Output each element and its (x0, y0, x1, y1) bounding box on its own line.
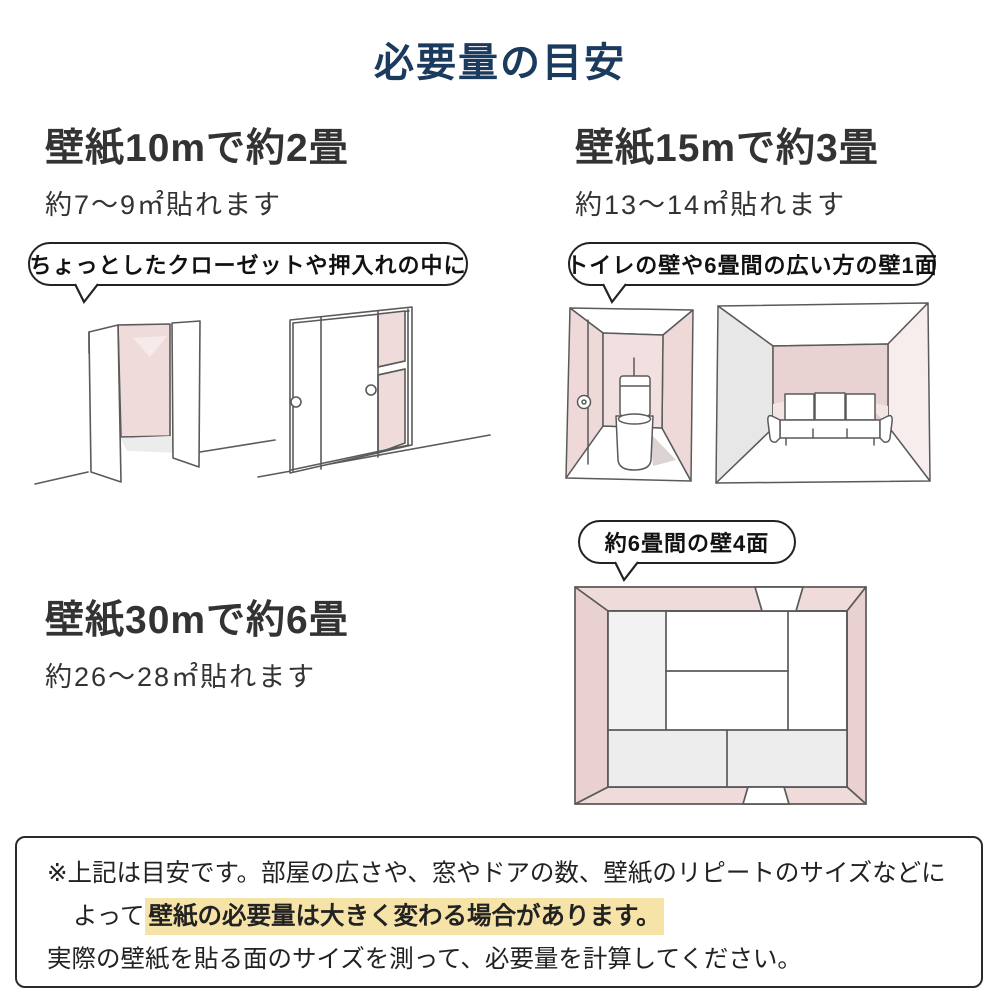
section-10m-subtext: 約7〜9㎡貼れます (45, 183, 349, 222)
bubble-tail-icon (612, 562, 642, 583)
section-15m-bubble-label: トイレの壁や6畳間の広い方の壁1面 (566, 248, 937, 280)
page-title: 必要量の目安 (0, 30, 1000, 88)
section-30m-subtext: 約26〜28㎡貼れます (45, 655, 349, 694)
note-line-2-prefix: よって (73, 903, 145, 930)
section-10m: 壁紙10mで約2畳 約7〜9㎡貼れます (45, 126, 349, 222)
section-15m-bubble: トイレの壁や6畳間の広い方の壁1面 (568, 242, 936, 286)
section-30m: 壁紙30mで約6畳 約26〜28㎡貼れます (45, 598, 349, 694)
toilet-room-sketch (566, 308, 693, 481)
note-box: ※上記は目安です。部屋の広さや、窓やドアの数、壁紙のリピートのサイズなどに よっ… (15, 836, 983, 988)
section-10m-bubble: ちょっとしたクローゼットや押入れの中に (28, 242, 468, 286)
infographic-canvas: 必要量の目安 壁紙10mで約2畳 約7〜9㎡貼れます ちょっとしたクローゼットや… (0, 0, 1000, 1000)
section-10m-bubble-label: ちょっとしたクローゼットや押入れの中に (30, 248, 467, 280)
section-30m-bubble-label: 約6畳間の壁4面 (605, 526, 769, 558)
note-line-2: よって壁紙の必要量は大きく変わる場合があります。 (47, 895, 955, 938)
closet-illustrations (30, 293, 510, 523)
section-15m: 壁紙15mで約3畳 約13〜14㎡貼れます (575, 126, 879, 222)
section-10m-heading: 壁紙10mで約2畳 (45, 126, 349, 173)
note-line-3: 実際の壁紙を貼る面のサイズを測って、必要量を計算してください。 (47, 938, 955, 981)
tatami-room-top-view-sketch (573, 585, 868, 807)
note-highlight: 壁紙の必要量は大きく変わる場合があります。 (145, 898, 664, 935)
six-mat-room-one-wall-sketch (716, 303, 930, 483)
room-illustrations (558, 298, 950, 490)
section-15m-heading: 壁紙15mで約3畳 (575, 126, 879, 173)
sliding-door-closet-sketch (258, 307, 490, 477)
section-15m-subtext: 約13〜14㎡貼れます (575, 183, 879, 222)
section-30m-bubble: 約6畳間の壁4面 (578, 520, 796, 564)
open-closet-sketch (35, 321, 275, 484)
note-line-1: ※上記は目安です。部屋の広さや、窓やドアの数、壁紙のリピートのサイズなどに (47, 852, 955, 895)
section-30m-heading: 壁紙30mで約6畳 (45, 598, 349, 645)
